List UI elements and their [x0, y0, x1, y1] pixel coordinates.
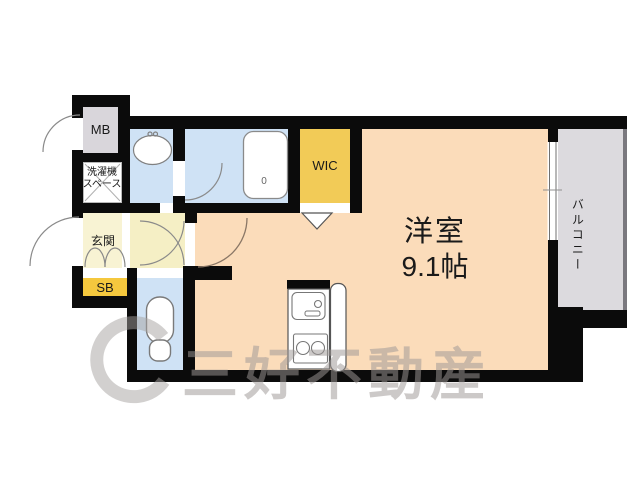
room-bathroom — [185, 129, 288, 203]
wall — [72, 207, 83, 218]
wall — [118, 107, 130, 158]
floorplan-canvas: MB 洗濯機 スペース 玄関 SB WIC 洋室 9.1帖 バルコニー 0 三好… — [0, 0, 640, 480]
genkan-step-divider — [122, 213, 130, 270]
label-main-room-name: 洋室 — [375, 215, 495, 250]
label-tub-drain: 0 — [257, 176, 271, 188]
toilet-door-threshold — [137, 268, 183, 278]
wall — [183, 278, 195, 372]
label-sb: SB — [83, 280, 127, 296]
wall — [72, 153, 130, 162]
wall — [548, 116, 558, 142]
wall-balcony-bottom — [583, 310, 627, 328]
balcony-outer-edge — [623, 129, 627, 314]
label-main-room: 洋室 9.1帖 — [375, 215, 495, 283]
label-laundry: 洗濯機 スペース — [78, 167, 126, 191]
label-laundry-line1: 洗濯機 — [87, 167, 117, 178]
entrance-door-arc — [30, 217, 79, 266]
wall — [127, 268, 137, 382]
wall — [288, 129, 300, 205]
wall — [75, 296, 127, 308]
label-mb: MB — [83, 122, 118, 138]
wall — [185, 213, 197, 223]
room-main-lower — [195, 213, 362, 370]
wall-corner — [548, 307, 583, 382]
wall — [173, 203, 300, 213]
wall — [173, 129, 185, 161]
wall — [72, 95, 83, 118]
wall — [72, 203, 160, 213]
room-toilet — [137, 278, 183, 370]
mb-door-arc — [43, 115, 80, 152]
label-main-room-size: 9.1帖 — [375, 250, 495, 284]
label-genkan: 玄関 — [83, 234, 123, 248]
wall — [350, 129, 362, 213]
room-balcony — [558, 129, 627, 315]
kitchen-hood — [287, 280, 330, 289]
room-hall — [130, 213, 185, 270]
label-balcony: バルコニー — [570, 192, 584, 278]
label-laundry-line2: スペース — [83, 179, 122, 190]
label-wic: WIC — [300, 158, 350, 174]
room-washbasin — [130, 129, 173, 203]
wall — [548, 240, 558, 307]
wall-bottom — [127, 370, 583, 382]
